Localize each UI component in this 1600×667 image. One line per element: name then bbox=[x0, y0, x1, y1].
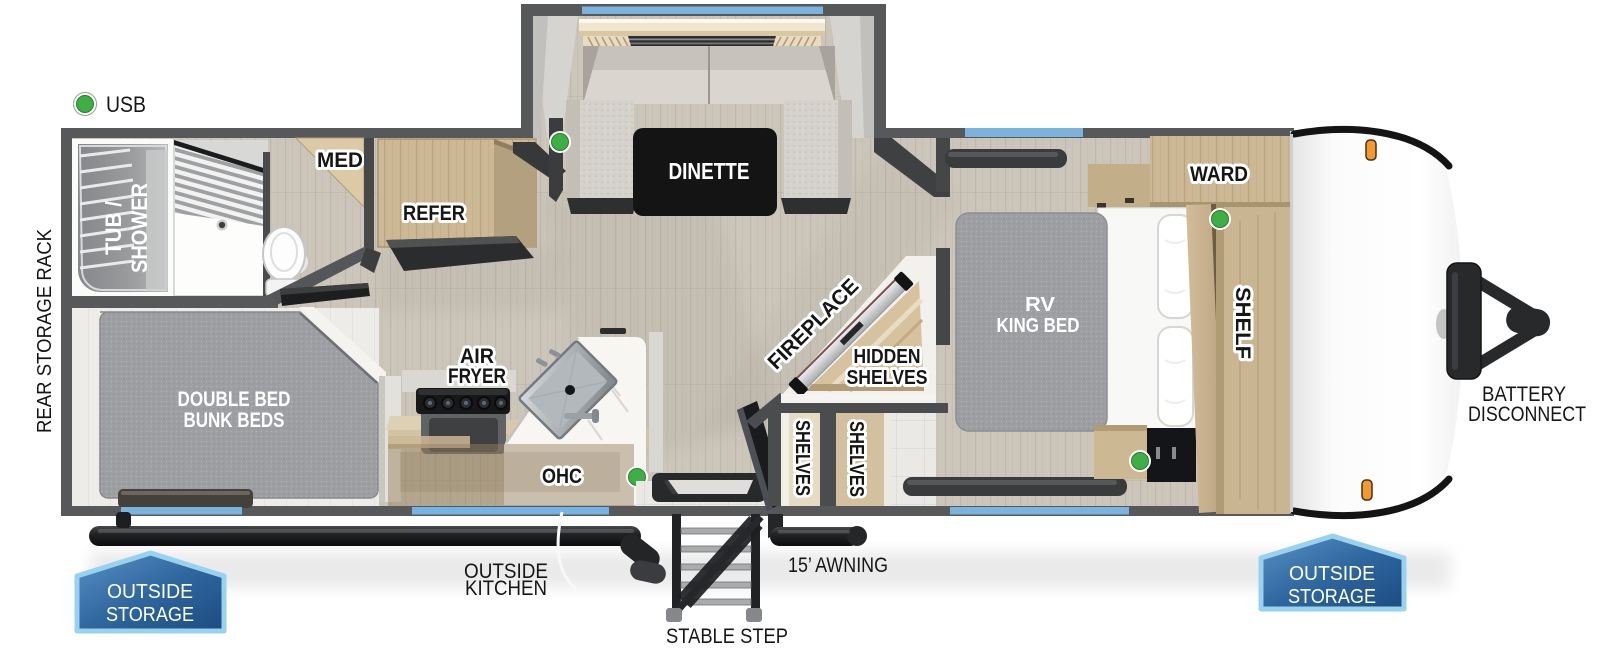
svg-text:OUTSIDE: OUTSIDE bbox=[1289, 563, 1375, 585]
svg-text:OHC: OHC bbox=[542, 465, 582, 488]
svg-text:DISCONNECT: DISCONNECT bbox=[1468, 403, 1586, 426]
svg-text:WARD: WARD bbox=[1190, 163, 1248, 186]
svg-text:15’ AWNING: 15’ AWNING bbox=[788, 554, 888, 577]
svg-text:HIDDEN: HIDDEN bbox=[854, 346, 921, 368]
svg-text:SHELVES: SHELVES bbox=[847, 367, 928, 389]
svg-text:REFER: REFER bbox=[403, 202, 465, 225]
svg-text:TUB /: TUB / bbox=[101, 201, 126, 255]
svg-text:DOUBLE BED: DOUBLE BED bbox=[178, 388, 291, 411]
svg-text:STABLE STEP: STABLE STEP bbox=[666, 625, 788, 648]
svg-text:SHELVES: SHELVES bbox=[845, 421, 867, 497]
svg-text:REAR STORAGE RACK: REAR STORAGE RACK bbox=[34, 228, 56, 433]
svg-text:SHELVES: SHELVES bbox=[791, 420, 813, 496]
svg-text:KING BED: KING BED bbox=[997, 315, 1080, 337]
svg-text:KITCHEN: KITCHEN bbox=[465, 577, 547, 600]
svg-text:BUNK BEDS: BUNK BEDS bbox=[184, 409, 285, 432]
svg-text:MED: MED bbox=[317, 149, 363, 172]
svg-text:STORAGE: STORAGE bbox=[106, 604, 194, 626]
svg-text:OUTSIDE: OUTSIDE bbox=[107, 581, 193, 603]
svg-text:USB: USB bbox=[106, 92, 146, 117]
svg-text:RV: RV bbox=[1025, 294, 1056, 316]
svg-text:SHOWER: SHOWER bbox=[127, 183, 152, 273]
svg-text:SHELF: SHELF bbox=[1231, 287, 1254, 359]
svg-text:DINETTE: DINETTE bbox=[669, 158, 750, 184]
svg-text:FRYER: FRYER bbox=[448, 365, 506, 388]
svg-text:STORAGE: STORAGE bbox=[1288, 586, 1376, 608]
